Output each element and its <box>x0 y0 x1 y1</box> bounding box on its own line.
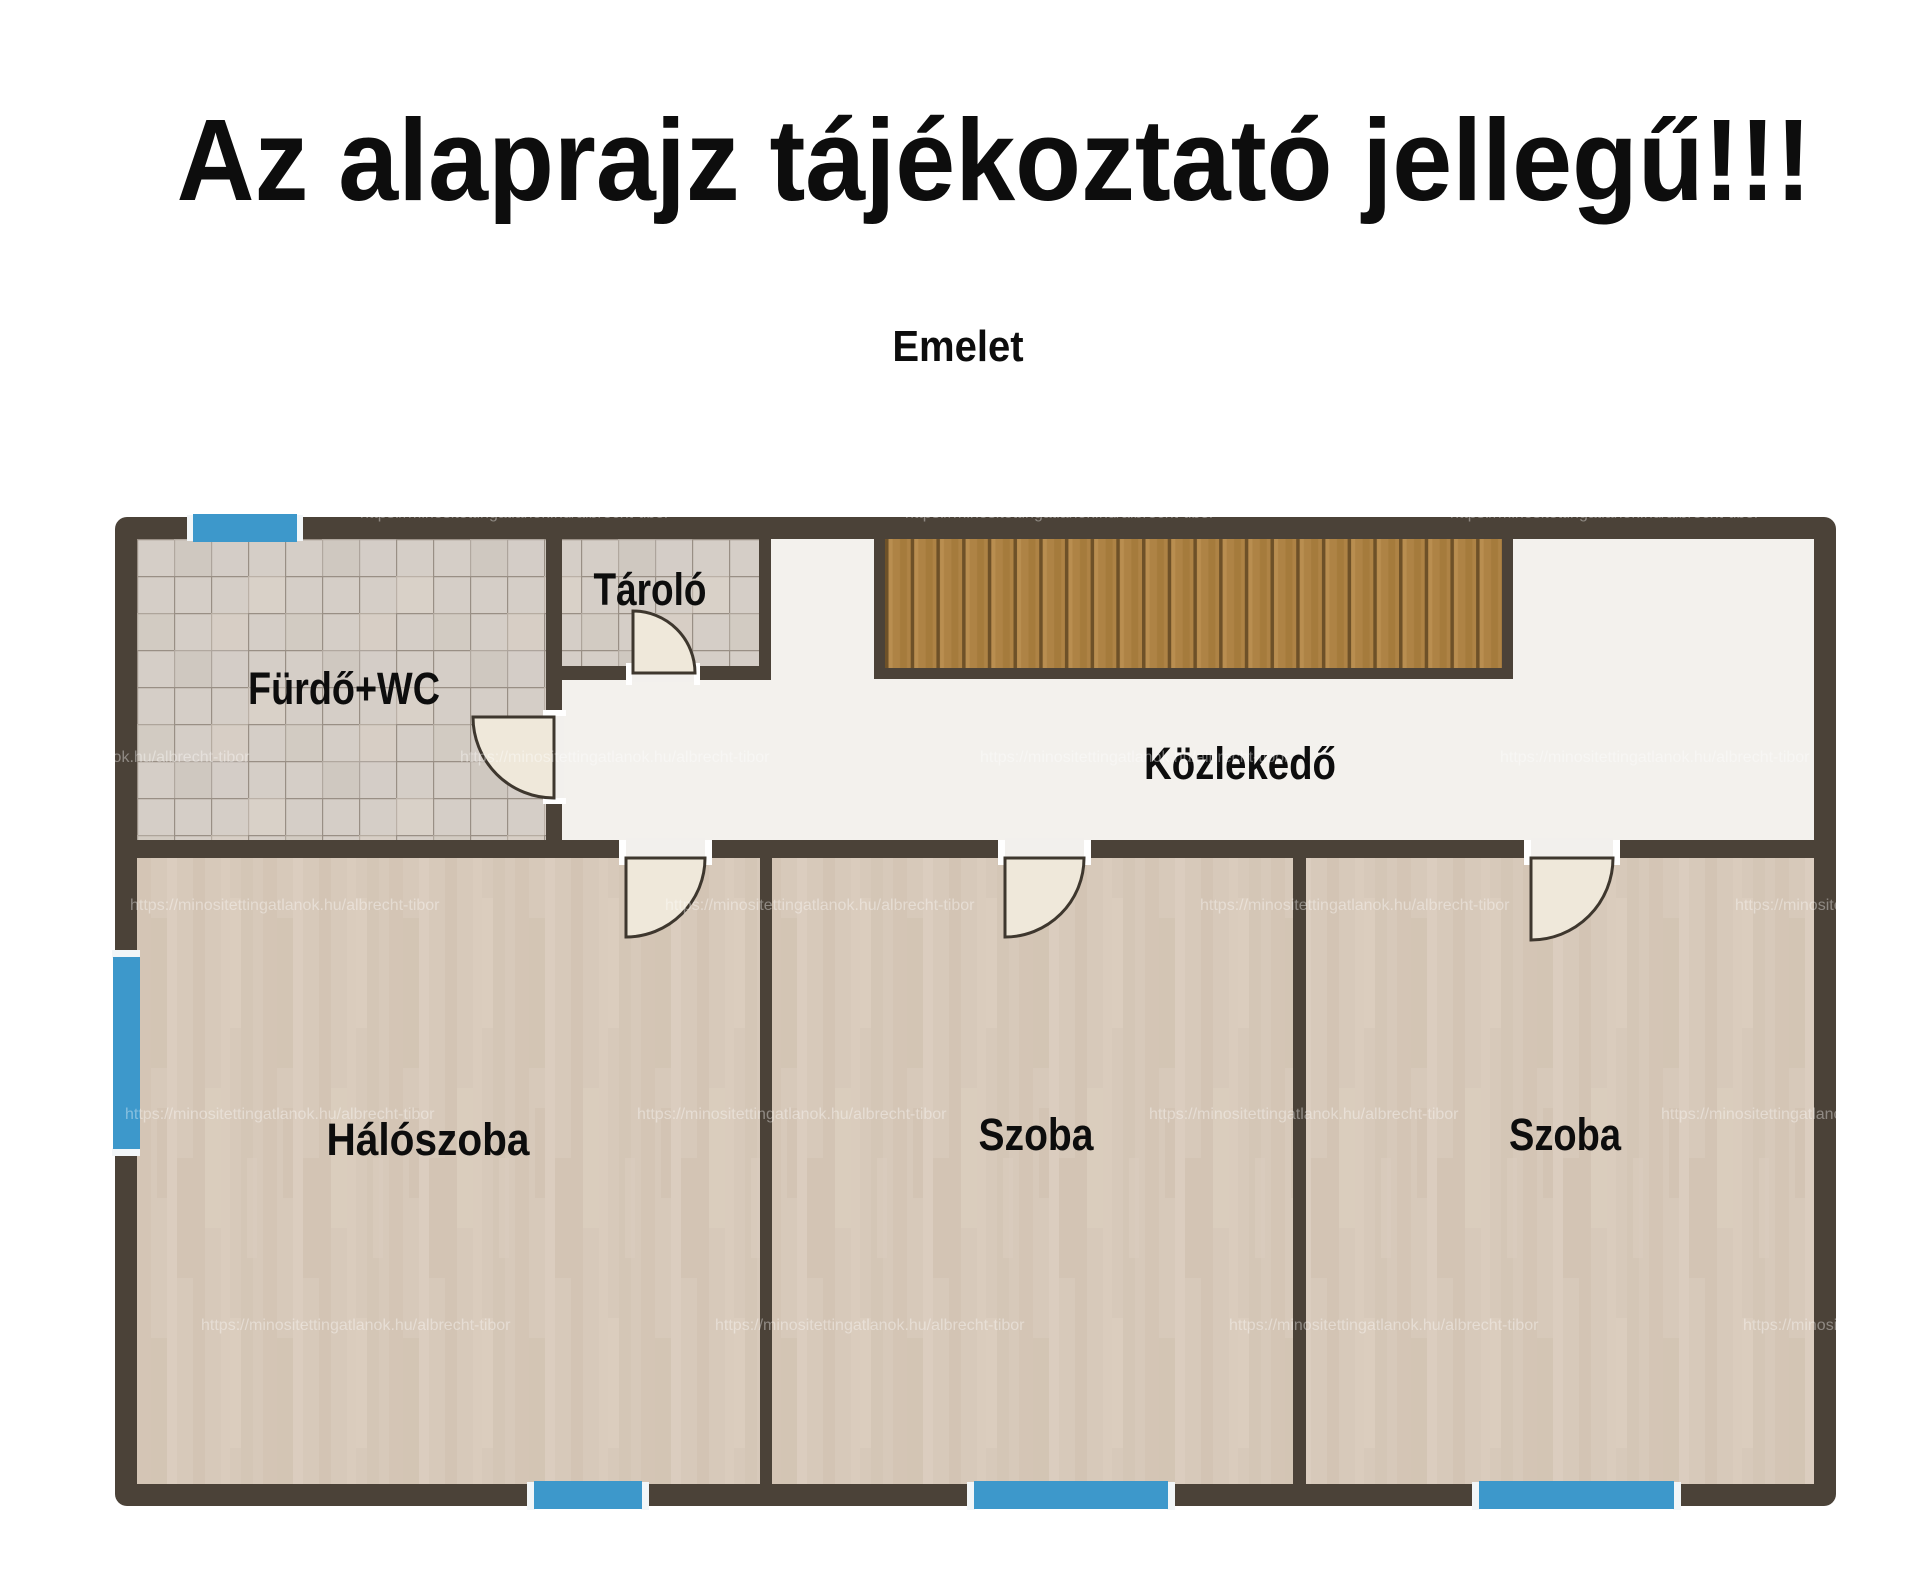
svg-text:Szoba: Szoba <box>979 1109 1095 1160</box>
svg-text:Szoba: Szoba <box>1509 1109 1622 1160</box>
svg-text:Tároló: Tároló <box>594 564 707 615</box>
svg-text:Fürdő+WC: Fürdő+WC <box>248 663 440 714</box>
